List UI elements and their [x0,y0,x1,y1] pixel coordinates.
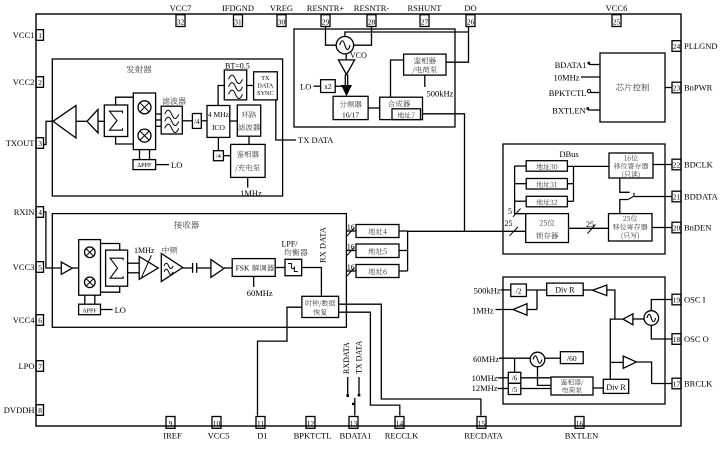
svg-text:500kHz: 500kHz [427,88,454,98]
svg-text:/4: /4 [194,118,200,126]
svg-text:VCC4: VCC4 [13,315,35,325]
svg-text:APPF: APPF [82,308,97,314]
svg-text:DATA: DATA [257,83,274,90]
svg-text:TXOUT: TXOUT [6,138,36,148]
svg-text:1MHz: 1MHz [472,306,494,316]
svg-text:TX: TX [261,75,270,82]
svg-text:16: 16 [347,243,355,252]
svg-text:16: 16 [576,419,584,428]
svg-text:VCO: VCO [350,51,367,60]
svg-text:RECDATA: RECDATA [464,431,503,441]
svg-text:4 MHz: 4 MHz [208,110,230,119]
svg-text:VCC7: VCC7 [170,3,192,13]
svg-text:BnDEN: BnDEN [684,223,711,233]
svg-text:4: 4 [38,208,42,217]
svg-text:/6: /6 [512,375,518,383]
svg-text:DO: DO [464,3,476,13]
svg-text:24: 24 [673,42,681,51]
svg-text:SYNC: SYNC [257,90,274,97]
svg-text:26: 26 [467,17,475,26]
svg-text:RXIN: RXIN [14,207,35,217]
svg-text:IFDGND: IFDGND [222,3,254,13]
svg-text:LO: LO [300,82,311,92]
svg-text:VREG: VREG [270,3,293,13]
svg-text:15: 15 [478,419,486,428]
svg-text:12MHz: 12MHz [472,383,498,393]
svg-text:PLLGND: PLLGND [684,41,718,51]
svg-text:5: 5 [508,207,512,216]
svg-text:60MHz: 60MHz [247,288,273,298]
svg-text:21: 21 [673,192,681,201]
svg-text:500kHz: 500kHz [474,285,501,295]
svg-text:3: 3 [38,139,42,148]
svg-text:RESNTR-: RESNTR- [354,3,390,13]
svg-text:Div R: Div R [606,383,626,392]
svg-text:RESNTR+: RESNTR+ [307,3,345,13]
svg-text:30: 30 [278,17,286,26]
svg-text:BRCLK: BRCLK [684,379,713,389]
svg-text:6: 6 [38,316,42,325]
svg-text:BDCLK: BDCLK [684,160,714,170]
svg-text:17: 17 [673,379,681,388]
svg-text:BXTLEN: BXTLEN [552,106,586,116]
svg-text:BDATA1: BDATA1 [340,431,372,441]
svg-text:22: 22 [673,160,681,169]
svg-text:23: 23 [673,83,681,92]
svg-text:x2: x2 [324,82,332,91]
svg-text:LPO: LPO [18,361,34,371]
svg-text:BPKTCTL: BPKTCTL [294,431,332,441]
svg-text:32: 32 [177,17,185,26]
svg-text:16: 16 [347,223,355,232]
svg-text:18: 18 [673,335,681,344]
svg-text:27: 27 [421,17,429,26]
svg-text:10MHz: 10MHz [554,72,580,82]
svg-text:OSC O: OSC O [684,334,709,344]
svg-text:25: 25 [505,219,513,228]
svg-text:ΔPPF: ΔPPF [137,162,152,169]
svg-text:16/17: 16/17 [342,111,359,120]
svg-text:10: 10 [213,419,221,428]
svg-text:TX DATA: TX DATA [355,340,364,374]
svg-text:DVDDH: DVDDH [4,405,35,415]
svg-text:VCC1: VCC1 [13,30,35,40]
svg-text:LPF/: LPF/ [281,239,298,248]
svg-text:/2: /2 [516,286,522,295]
svg-text:28: 28 [368,17,376,26]
svg-text:10MHz: 10MHz [472,373,498,383]
svg-text:DBus: DBus [559,149,578,159]
svg-text:19: 19 [673,295,681,304]
svg-text:RXDATA: RXDATA [342,342,351,374]
svg-text:11: 11 [257,419,264,428]
svg-text:/60: /60 [567,354,577,363]
svg-text:LO: LO [171,160,182,170]
svg-text:RSHUNT: RSHUNT [407,3,442,13]
svg-text:VCC6: VCC6 [606,3,628,13]
svg-text:RECCLK: RECCLK [385,431,419,441]
svg-text:60MHz: 60MHz [473,354,499,364]
svg-text:BnPWR: BnPWR [684,83,713,93]
svg-text:BDDATA: BDDATA [684,192,719,202]
svg-text:RX DATA: RX DATA [318,226,328,263]
svg-text:FSK: FSK [236,264,250,273]
svg-text:BPKTCTL: BPKTCTL [549,88,587,98]
svg-text:31: 31 [234,17,242,26]
svg-text:25: 25 [613,17,621,26]
svg-text:29: 29 [322,17,330,26]
svg-text:13: 13 [350,419,358,428]
svg-text:5: 5 [38,263,42,272]
svg-text:BXTLEN: BXTLEN [565,431,599,441]
svg-text:20: 20 [673,223,681,232]
svg-text:1MHz: 1MHz [240,188,262,198]
svg-text:OSC I: OSC I [684,295,706,305]
svg-text:VCC3: VCC3 [13,262,35,272]
svg-text:9: 9 [169,419,173,428]
svg-text:1MHz: 1MHz [134,246,155,255]
svg-text:TX DATA: TX DATA [298,135,334,145]
svg-text:14: 14 [396,419,404,428]
svg-text:VCC5: VCC5 [208,431,230,441]
svg-text:D1: D1 [257,431,267,441]
svg-text:IREF: IREF [163,431,182,441]
svg-text:/5: /5 [512,386,518,394]
svg-text:2: 2 [38,78,42,87]
svg-text:/4: /4 [216,153,222,160]
svg-text:8: 8 [38,406,42,415]
svg-text:ICO: ICO [212,123,226,132]
svg-text:1: 1 [38,31,42,40]
svg-text:Div R: Div R [555,286,575,295]
svg-text:16: 16 [347,263,355,272]
svg-text:LO: LO [115,305,126,315]
svg-text:7: 7 [38,362,42,371]
svg-text:VCC2: VCC2 [13,77,35,87]
svg-text:BDATA1: BDATA1 [555,60,587,70]
svg-text:12: 12 [307,419,315,428]
